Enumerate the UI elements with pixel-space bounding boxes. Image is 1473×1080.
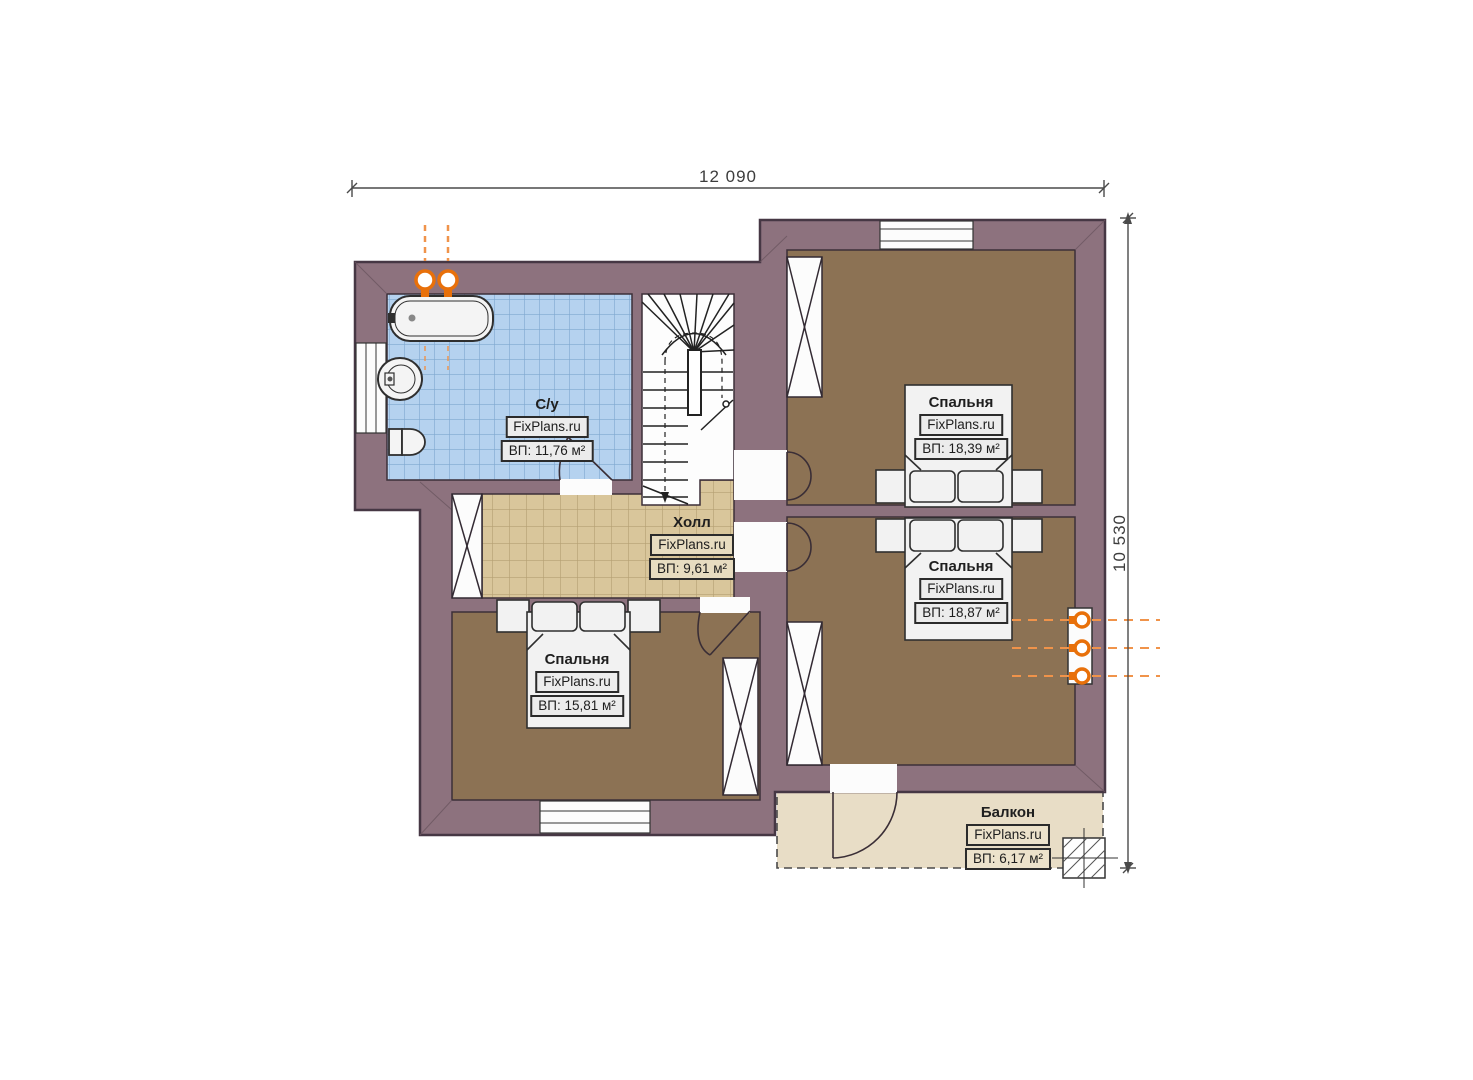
room-label-bathroom: С/у FixPlans.ru ВП: 11,76 м² <box>501 396 594 462</box>
room-label-bedroom-top-right: Спальня FixPlans.ru ВП: 18,39 м² <box>914 394 1008 460</box>
room-label-balcony: Балкон FixPlans.ru ВП: 6,17 м² <box>965 804 1051 870</box>
floor-plan-page: 12 090 10 530 С/у FixPlans.ru ВП: 11,76 … <box>0 0 1473 1080</box>
brand-box: FixPlans.ru <box>650 534 734 556</box>
pillow <box>532 602 577 631</box>
area-box: ВП: 6,17 м² <box>965 848 1051 870</box>
room-name: Балкон <box>981 804 1035 821</box>
pillow <box>580 602 625 631</box>
bathtub <box>388 296 493 341</box>
area-box: ВП: 18,87 м² <box>914 602 1008 624</box>
room-label-bedroom-left: Спальня FixPlans.ru ВП: 15,81 м² <box>530 651 624 717</box>
room-name: Спальня <box>929 394 994 411</box>
balcony-floor <box>777 790 1103 868</box>
pillow <box>958 520 1003 551</box>
room-name: Спальня <box>545 651 610 668</box>
brand-box: FixPlans.ru <box>505 416 589 438</box>
toilet <box>389 429 425 455</box>
brand-box: FixPlans.ru <box>966 824 1050 846</box>
bedroom-left-window <box>540 801 650 833</box>
room-name: С/у <box>535 396 558 413</box>
room-label-hall: Холл FixPlans.ru ВП: 9,61 м² <box>649 514 735 580</box>
area-box: ВП: 15,81 м² <box>530 695 624 717</box>
floor-plan-drawing <box>0 0 1473 1080</box>
washbasin <box>378 358 422 400</box>
brand-box: FixPlans.ru <box>919 414 1003 436</box>
pillow <box>910 520 955 551</box>
bedroom-top-right-window <box>880 221 973 249</box>
brand-box: FixPlans.ru <box>919 578 1003 600</box>
dimension-top-label: 12 090 <box>699 167 757 187</box>
brand-box: FixPlans.ru <box>535 671 619 693</box>
area-box: ВП: 9,61 м² <box>649 558 735 580</box>
room-name: Холл <box>673 514 711 531</box>
pillow <box>910 471 955 502</box>
room-name: Спальня <box>929 558 994 575</box>
pillow <box>958 471 1003 502</box>
dimension-right-label: 10 530 <box>1110 514 1130 572</box>
area-box: ВП: 18,39 м² <box>914 438 1008 460</box>
room-label-bedroom-bottom-right: Спальня FixPlans.ru ВП: 18,87 м² <box>914 558 1008 624</box>
area-box: ВП: 11,76 м² <box>501 440 594 462</box>
